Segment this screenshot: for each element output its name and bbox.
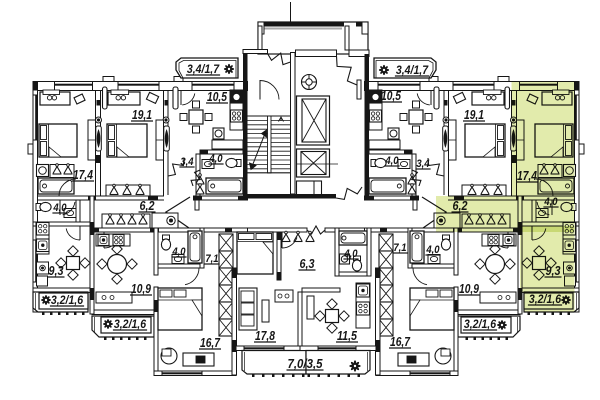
svg-text:11,5: 11,5 (337, 329, 358, 343)
svg-text:4,0: 4,0 (172, 246, 187, 258)
svg-text:17,8: 17,8 (255, 329, 275, 343)
svg-text:3,4: 3,4 (416, 158, 429, 170)
svg-text:7,0/3,5: 7,0/3,5 (288, 357, 324, 371)
svg-text:4,0: 4,0 (209, 153, 224, 165)
svg-text:10,5: 10,5 (207, 90, 228, 104)
svg-text:3,4/1,7: 3,4/1,7 (187, 64, 220, 76)
svg-text:4,0: 4,0 (426, 244, 441, 256)
svg-text:6,2: 6,2 (140, 199, 155, 213)
svg-text:4,0: 4,0 (53, 202, 68, 214)
svg-text:16,7: 16,7 (390, 335, 411, 349)
svg-text:3,2/1,6: 3,2/1,6 (464, 319, 497, 331)
svg-text:16,7: 16,7 (200, 336, 221, 350)
svg-text:3,2/1,6: 3,2/1,6 (114, 319, 147, 331)
svg-text:3,4/1,7: 3,4/1,7 (396, 65, 429, 77)
svg-text:10,5: 10,5 (381, 89, 402, 103)
svg-text:4,0: 4,0 (385, 155, 400, 167)
svg-text:10,9: 10,9 (459, 282, 479, 296)
svg-text:7,1: 7,1 (205, 253, 218, 265)
svg-text:10,9: 10,9 (131, 282, 151, 296)
svg-text:7,1: 7,1 (393, 242, 406, 254)
svg-text:17,4: 17,4 (73, 168, 93, 182)
svg-text:3,2/1,6: 3,2/1,6 (51, 295, 84, 307)
svg-text:19,1: 19,1 (464, 108, 484, 122)
svg-text:19,1: 19,1 (132, 108, 152, 122)
svg-text:6,3: 6,3 (300, 257, 315, 271)
svg-text:9,3: 9,3 (49, 264, 64, 278)
svg-text:4,0: 4,0 (344, 248, 359, 260)
svg-text:3,4: 3,4 (180, 156, 193, 168)
